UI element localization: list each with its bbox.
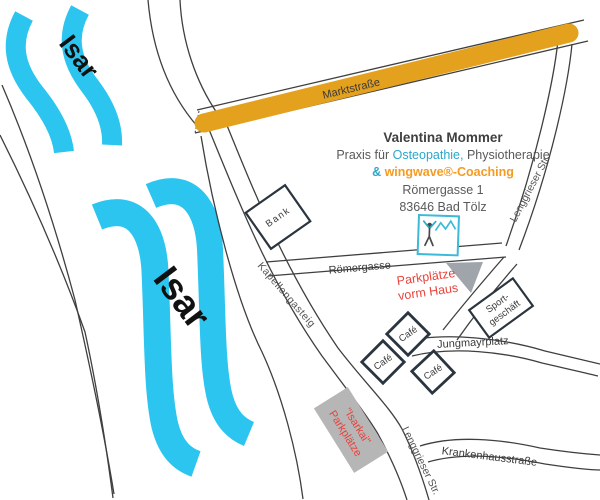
parking-isarkai-lot: [314, 387, 388, 473]
praxis-services-line: Praxis für Osteopathie, Physiotherapie: [326, 147, 560, 165]
north-road-line: [148, 0, 197, 126]
isar-river-lower-group: Isar: [97, 191, 249, 464]
street-label-kapellengasteig: Kapellengasteig: [255, 260, 318, 330]
building-cafe-3: Café: [412, 351, 454, 393]
praxis-physiotherapie: Physiotherapie: [463, 148, 549, 162]
street-label-jungmayrplatz: Jungmayrplatz: [437, 335, 509, 351]
street-label-lenggrieser-lower: Lenggrieser Str.: [399, 425, 442, 497]
street-label-krankenhausstrasse: Krankenhausstraße: [441, 445, 538, 469]
building-cafe-1: Café: [362, 341, 404, 383]
praxis-prefix: Praxis für: [336, 148, 392, 162]
street-label-roemergasse: Römergasse: [328, 259, 391, 276]
parking-isarkai-area: "Isarkai" Parkplätze: [314, 387, 388, 473]
map-svg: Isar Isar Marktstraße Römergasse Kapell: [0, 0, 600, 500]
isar-river-upper-group: Isar: [16, 10, 112, 152]
north-road-line: [180, 0, 217, 113]
parking-vorm-haus-label: Parkplätze vorm Haus: [395, 266, 459, 303]
river-label-upper: Isar: [53, 29, 105, 84]
praxis-name: Valentina Mommer: [326, 129, 560, 147]
marktstrasse-road: Marktstraße: [195, 20, 588, 133]
praxis-address-street: Römergasse 1: [326, 182, 560, 200]
river-band: [97, 213, 196, 464]
praxis-logo-icon: [418, 215, 459, 255]
building-cafe-2: Café: [387, 313, 429, 355]
praxis-info-block: Valentina Mommer Praxis für Osteopathie,…: [326, 129, 560, 217]
praxis-address-city: 83646 Bad Tölz: [326, 199, 560, 217]
map-canvas: Isar Isar Marktstraße Römergasse Kapell: [0, 0, 600, 500]
praxis-osteopathie: Osteopathie,: [393, 148, 464, 162]
marktstrasse-band: [204, 33, 569, 123]
river-band: [16, 16, 64, 152]
marktstrasse-outline: [197, 20, 584, 110]
praxis-wingwave: wingwave®-Coaching: [385, 165, 514, 179]
praxis-ampersand: &: [372, 165, 385, 179]
riverside-road-west-line: [0, 135, 113, 498]
praxis-coaching-line: & wingwave®-Coaching: [326, 164, 560, 182]
